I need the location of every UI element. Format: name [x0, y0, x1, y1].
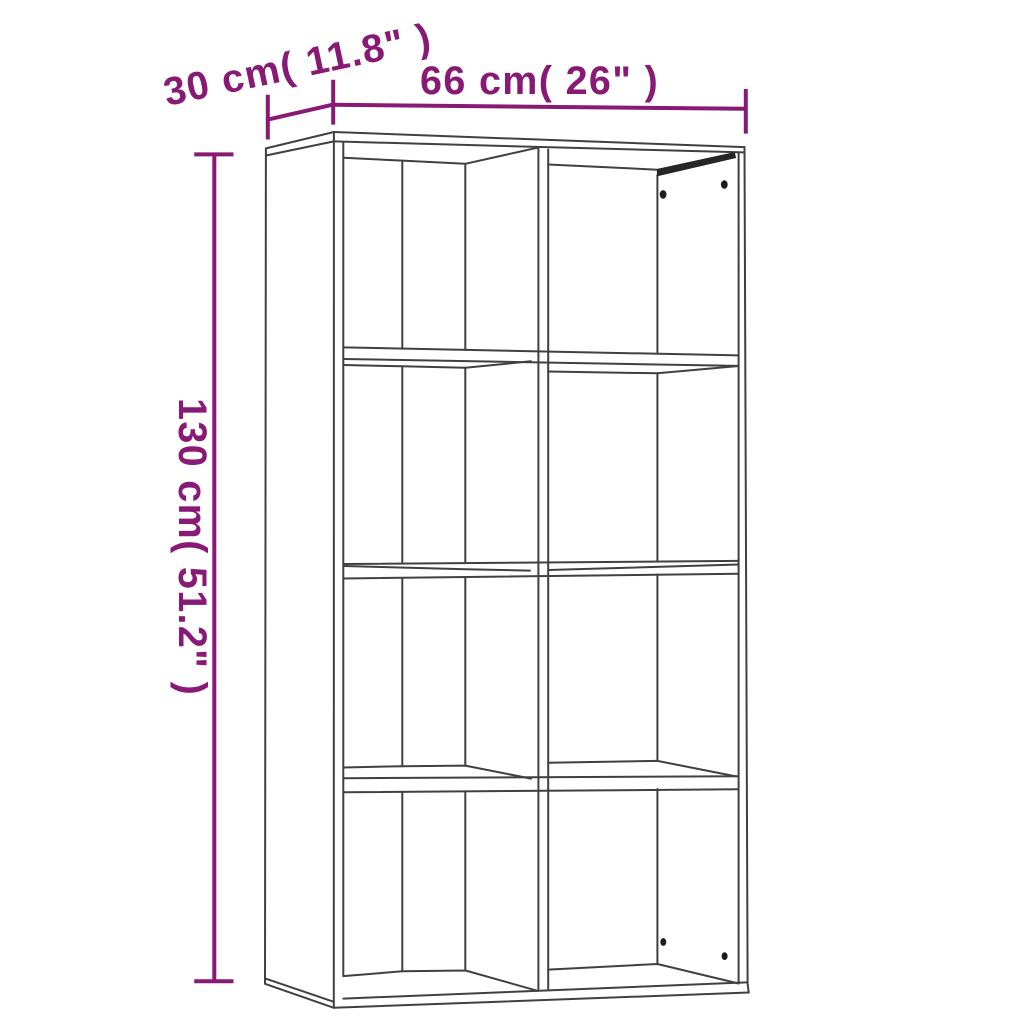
svg-text:130 cm( 51.2" ): 130 cm( 51.2" ): [170, 398, 214, 696]
svg-text:66 cm( 26" ): 66 cm( 26" ): [420, 59, 659, 103]
